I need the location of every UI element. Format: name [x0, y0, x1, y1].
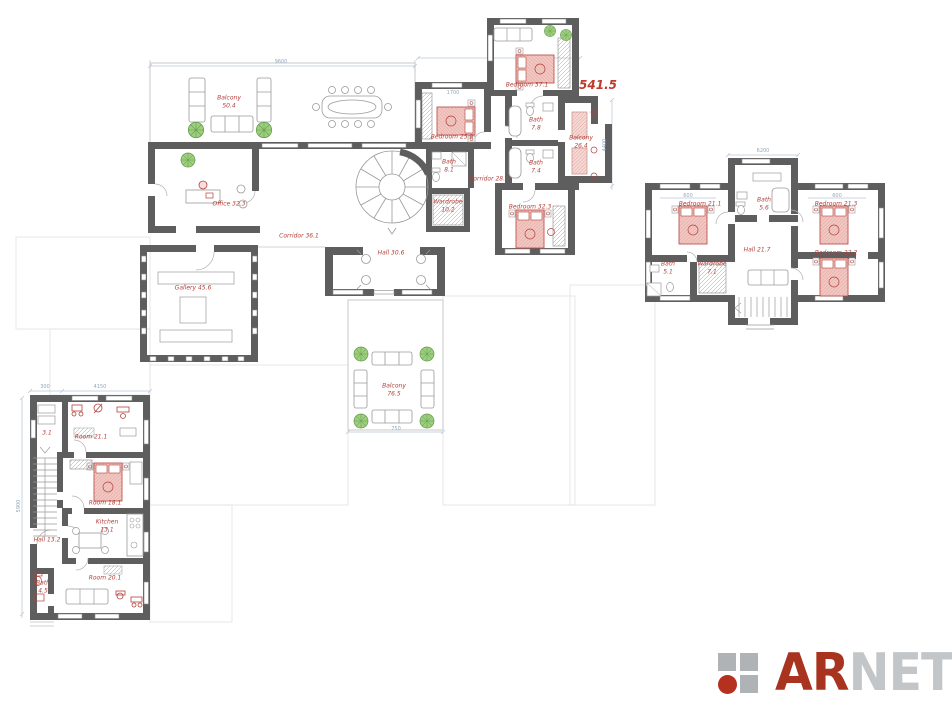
room-label-hall-right: Hall 21.7 — [744, 246, 771, 254]
dimension-text: 300 — [40, 384, 50, 390]
room-label-bedroom-22-2: Bedroom 22.2 — [815, 249, 858, 257]
logo-squares-icon — [718, 653, 758, 695]
dimension-text: 4400 — [602, 139, 608, 152]
room-label-bath-5-6: Bath5.6 — [757, 197, 771, 212]
porch-steps — [30, 622, 54, 626]
dimension-text: 750 — [391, 426, 401, 432]
logo-red-dot — [718, 675, 737, 694]
room-label-office: Office 32.3 — [213, 200, 246, 208]
dimension-text: 9600 — [275, 59, 288, 65]
room-label-wardrobe-main: Wardrobe10.2 — [433, 199, 462, 214]
room-label-bedroom-25-8: Bedroom 25.8 — [431, 133, 474, 141]
room-label-corridor-main: Corridor 36.1 — [279, 232, 319, 240]
room-label-bedroom-21-1: Bedroom 21.1 — [679, 200, 722, 208]
room-label-bath-7-8: Bath7.8 — [529, 117, 543, 132]
dimension-text: 6200 — [757, 148, 770, 154]
dimension-text: 600 — [683, 193, 693, 199]
room-label-bath-4-5: Bath4.5 — [36, 580, 50, 595]
room-label-balcony-76-5: Balcony76.5 — [382, 383, 406, 398]
room-label-balcony-nw: Balcony50.4 — [217, 95, 241, 110]
room-label-room-21-1: Room 21.1 — [75, 433, 108, 441]
room-label-gallery: Gallery 45.6 — [175, 284, 212, 292]
dimension-text: 5900 — [16, 500, 22, 513]
room-label-room-18-1: Room 18.1 — [89, 499, 122, 507]
room-label-storage-3-1: 3.1 — [42, 429, 52, 437]
room-label-room-20-1: Room 20.1 — [89, 574, 122, 582]
room-label-bedroom-37-1: Bedroom 37.1 — [506, 81, 549, 89]
arnet-logo: AR NET — [718, 651, 952, 696]
room-label-kitchen: Kitchen13.1 — [96, 519, 119, 534]
office-chair — [199, 181, 207, 189]
terrace-south — [348, 300, 443, 430]
room-label-hall-bottom: Hall 13.2 — [34, 536, 61, 544]
room-label-balcony-26-4: Balcony26.4 — [569, 135, 593, 150]
logo-text-net: NET — [849, 651, 952, 696]
gallery-furniture — [158, 272, 234, 342]
room-label-bedroom-21-3: Bedroom 21.3 — [815, 200, 858, 208]
curved-stair-wall — [400, 152, 428, 174]
dimension-text: 1700 — [447, 90, 460, 96]
floor-plan-drawing — [0, 0, 952, 716]
dimension-text: 4150 — [94, 384, 107, 390]
total-area-label: 541.5 — [579, 78, 617, 92]
hall-sofa — [748, 270, 788, 285]
room-label-wardrobe-right: Wardrobe7.1 — [697, 261, 726, 276]
dimension-text: 600 — [832, 193, 842, 199]
wardrobe-strip — [558, 38, 570, 88]
kitchen-counter — [127, 514, 143, 556]
room-label-bath-7-4: Bath7.4 — [529, 160, 543, 175]
room-label-corridor-28-4: Corridor 28.4 — [469, 175, 509, 183]
room-label-bath-5-1: Bath5.1 — [661, 261, 675, 276]
room-label-bedroom-32-3: Bedroom 32.3 — [509, 203, 552, 211]
logo-text-ar: AR — [775, 651, 849, 696]
floor-plan-page: Balcony50.4 Office 32.3 Gallery 45.6 Cor… — [0, 0, 952, 716]
room-label-hall-main: Hall 30.6 — [378, 249, 405, 257]
room-label-bath-8-1: Bath8.1 — [442, 159, 456, 174]
gym-equipment — [72, 404, 129, 419]
